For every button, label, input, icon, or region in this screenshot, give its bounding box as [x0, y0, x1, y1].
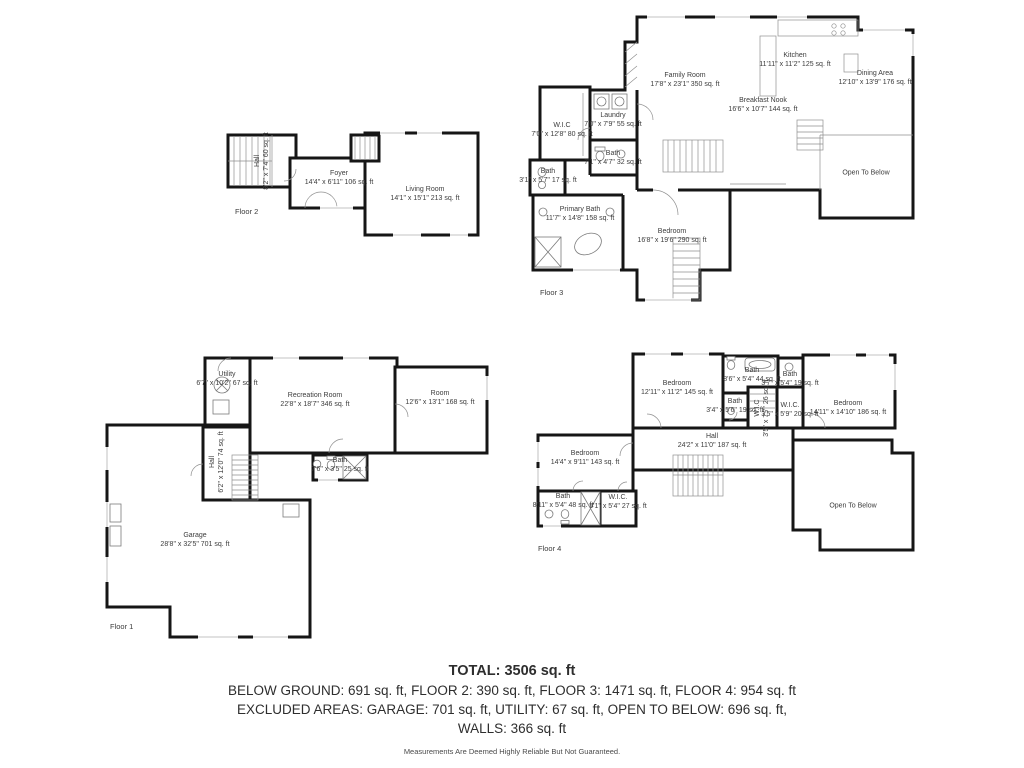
- room-name: Bath: [584, 149, 641, 158]
- room-dims: 8'2" x 7'4" 60 sq. ft: [262, 132, 271, 189]
- room-dims: 22'8" x 18'7" 346 sq. ft: [280, 400, 349, 409]
- room-name: Bedroom: [810, 399, 886, 408]
- room-name: Foyer: [305, 169, 374, 178]
- room-dims: 14'4" x 6'11" 106 sq. ft: [305, 178, 374, 187]
- room-name: Open To Below: [829, 501, 876, 510]
- floor4-tag: Floor 4: [538, 544, 561, 553]
- room-label-room: Room 12'6" x 13'1" 168 sq. ft: [405, 389, 474, 407]
- floor1-tag: Floor 1: [110, 622, 133, 631]
- room-dims: 6'7" x 10'2" 67 sq. ft: [196, 379, 257, 388]
- floor1-plan: Utility 6'7" x 10'2" 67 sq. ft Recreatio…: [103, 352, 495, 644]
- room-name: W.I.C: [531, 121, 592, 130]
- room-name: Room: [405, 389, 474, 398]
- summary-disclaimer: Measurements Are Deemed Highly Reliable …: [0, 747, 1024, 756]
- room-label-wic-f3: W.I.C 7'0" x 12'8" 80 sq. ft: [531, 121, 592, 139]
- room-dims: 11'11" x 11'2" 125 sq. ft: [759, 60, 830, 69]
- room-name: Bath: [311, 456, 368, 465]
- room-name: Recreation Room: [280, 391, 349, 400]
- room-name: Dining Area: [838, 69, 911, 78]
- room-label-open-below-f4: Open To Below: [829, 501, 876, 510]
- room-dims: 14'11" x 14'10" 186 sq. ft: [810, 408, 886, 417]
- room-name: Bedroom: [551, 449, 620, 458]
- room-name: W.I.C.: [589, 493, 646, 502]
- room-dims: 12'6" x 13'1" 168 sq. ft: [405, 398, 474, 407]
- room-label-family-room: Family Room 17'8" x 23'1" 350 sq. ft: [650, 71, 719, 89]
- floor3-tag: Floor 3: [540, 288, 563, 297]
- room-dims: 11'7" x 14'8" 158 sq. ft: [546, 214, 615, 223]
- room-dims: 8'11" x 5'4" 48 sq. ft: [533, 501, 594, 510]
- room-dims: 24'2" x 11'0" 187 sq. ft: [678, 441, 747, 450]
- room-name: Bath: [519, 167, 576, 176]
- room-label-bedroom-f3: Bedroom 16'8" x 19'6" 290 sq. ft: [637, 227, 706, 245]
- room-name: Family Room: [650, 71, 719, 80]
- room-label-foyer: Foyer 14'4" x 6'11" 106 sq. ft: [305, 169, 374, 187]
- room-dims: 16'8" x 19'6" 290 sq. ft: [637, 236, 706, 245]
- room-label-garage: Garage 28'8" x 32'5" 701 sq. ft: [160, 531, 229, 549]
- room-label-bath-f3a: Bath 7'1" x 4'7" 32 sq. ft: [584, 149, 641, 167]
- room-name: Primary Bath: [546, 205, 615, 214]
- room-dims: 12'10" x 13'9" 176 sq. ft: [838, 78, 911, 87]
- floor2-tag: Floor 2: [235, 207, 258, 216]
- room-dims: 28'8" x 32'5" 701 sq. ft: [160, 540, 229, 549]
- room-label-breakfast-nook: Breakfast Nook 16'6" x 10'7" 144 sq. ft: [728, 96, 797, 114]
- room-name: Kitchen: [759, 51, 830, 60]
- summary-walls-line: WALLS: 366 sq. ft: [0, 719, 1024, 738]
- room-label-bath-f3b: Bath 3'1" x 5'7" 17 sq. ft: [519, 167, 576, 185]
- summary-floors-line: BELOW GROUND: 691 sq. ft, FLOOR 2: 390 s…: [0, 681, 1024, 700]
- floor4-plan: Bedroom 12'11" x 11'2" 145 sq. ft Bath 8…: [533, 348, 925, 560]
- room-name: Hall: [678, 432, 747, 441]
- room-label-living-room: Living Room 14'1" x 15'1" 213 sq. ft: [390, 185, 459, 203]
- room-name: Bath: [761, 370, 818, 379]
- room-dims: 7'6" x 3'5" 25 sq. ft: [311, 465, 368, 474]
- room-name: Breakfast Nook: [728, 96, 797, 105]
- room-name: Utility: [196, 370, 257, 379]
- summary-excluded-line: EXCLUDED AREAS: GARAGE: 701 sq. ft, UTIL…: [0, 700, 1024, 719]
- room-label-primary-bath: Primary Bath 11'7" x 14'8" 158 sq. ft: [546, 205, 615, 223]
- room-label-bedroom-f4-left: Bedroom 12'11" x 11'2" 145 sq. ft: [641, 379, 713, 397]
- room-label-recreation-room: Recreation Room 22'8" x 18'7" 346 sq. ft: [280, 391, 349, 409]
- room-dims: 17'8" x 23'1" 350 sq. ft: [650, 80, 719, 89]
- room-label-laundry: Laundry 7'0" x 7'9" 55 sq. ft: [584, 111, 641, 129]
- room-dims: 7'0" x 12'8" 80 sq. ft: [531, 130, 592, 139]
- room-dims: 7'1" x 4'7" 32 sq. ft: [584, 158, 641, 167]
- room-label-utility: Utility 6'7" x 10'2" 67 sq. ft: [196, 370, 257, 388]
- room-name: Laundry: [584, 111, 641, 120]
- floor2-plan: Hall 8'2" x 7'4" 60 sq. ft Foyer 14'4" x…: [225, 125, 481, 243]
- room-label-bedroom-f4-right: Bedroom 14'11" x 14'10" 186 sq. ft: [810, 399, 886, 417]
- room-label-wic-f4-bottom: W.I.C. 5'1" x 5'4" 27 sq. ft: [589, 493, 646, 511]
- room-label-bath-f1: Bath 7'6" x 3'5" 25 sq. ft: [311, 456, 368, 474]
- room-dims: 3'1" x 5'7" 17 sq. ft: [519, 176, 576, 185]
- room-label-dining-area: Dining Area 12'10" x 13'9" 176 sq. ft: [838, 69, 911, 87]
- room-label-open-below-f3: Open To Below: [842, 168, 889, 177]
- room-name: Garage: [160, 531, 229, 540]
- room-label-bedroom-f4-bottom: Bedroom 14'4" x 9'11" 143 sq. ft: [551, 449, 620, 467]
- room-label-hall-f2: Hall 8'2" x 7'4" 60 sq. ft: [253, 132, 271, 189]
- room-label-hall-f4: Hall 24'2" x 11'0" 187 sq. ft: [678, 432, 747, 450]
- room-dims: 14'1" x 15'1" 213 sq. ft: [390, 194, 459, 203]
- room-name: Hall: [253, 132, 262, 189]
- room-dims: 6'2" x 12'0" 74 sq. ft: [217, 431, 226, 492]
- room-name: Hall: [208, 431, 217, 492]
- room-dims: 14'4" x 9'11" 143 sq. ft: [551, 458, 620, 467]
- room-label-kitchen: Kitchen 11'11" x 11'2" 125 sq. ft: [759, 51, 830, 69]
- room-name: Living Room: [390, 185, 459, 194]
- room-label-hall-f1: Hall 6'2" x 12'0" 74 sq. ft: [208, 431, 226, 492]
- room-name: Bedroom: [641, 379, 713, 388]
- summary-total: TOTAL: 3506 sq. ft: [0, 662, 1024, 681]
- room-name: Open To Below: [842, 168, 889, 177]
- room-name: Bath: [533, 492, 594, 501]
- room-name: Bedroom: [637, 227, 706, 236]
- floor3-plan: Family Room 17'8" x 23'1" 350 sq. ft Kit…: [528, 8, 924, 308]
- room-dims: 7'0" x 7'9" 55 sq. ft: [584, 120, 641, 129]
- room-dims: 12'11" x 11'2" 145 sq. ft: [641, 388, 713, 397]
- room-dims: 16'6" x 10'7" 144 sq. ft: [728, 105, 797, 114]
- room-label-bath-f4-bottom: Bath 8'11" x 5'4" 48 sq. ft: [533, 492, 594, 510]
- room-dims: 5'1" x 5'4" 27 sq. ft: [589, 502, 646, 511]
- area-summary: TOTAL: 3506 sq. ft BELOW GROUND: 691 sq.…: [0, 662, 1024, 756]
